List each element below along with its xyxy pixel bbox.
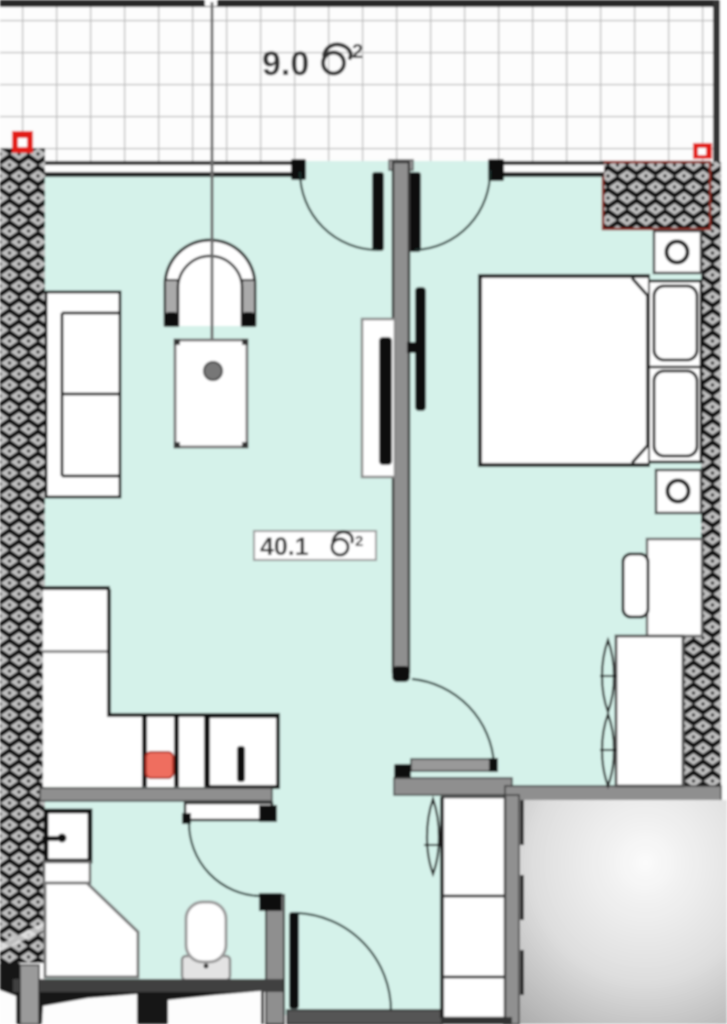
- svg-text:2: 2: [355, 533, 363, 550]
- svg-text:9.0: 9.0: [262, 45, 309, 83]
- svg-text:2: 2: [352, 41, 363, 63]
- svg-text:40.1: 40.1: [260, 533, 309, 561]
